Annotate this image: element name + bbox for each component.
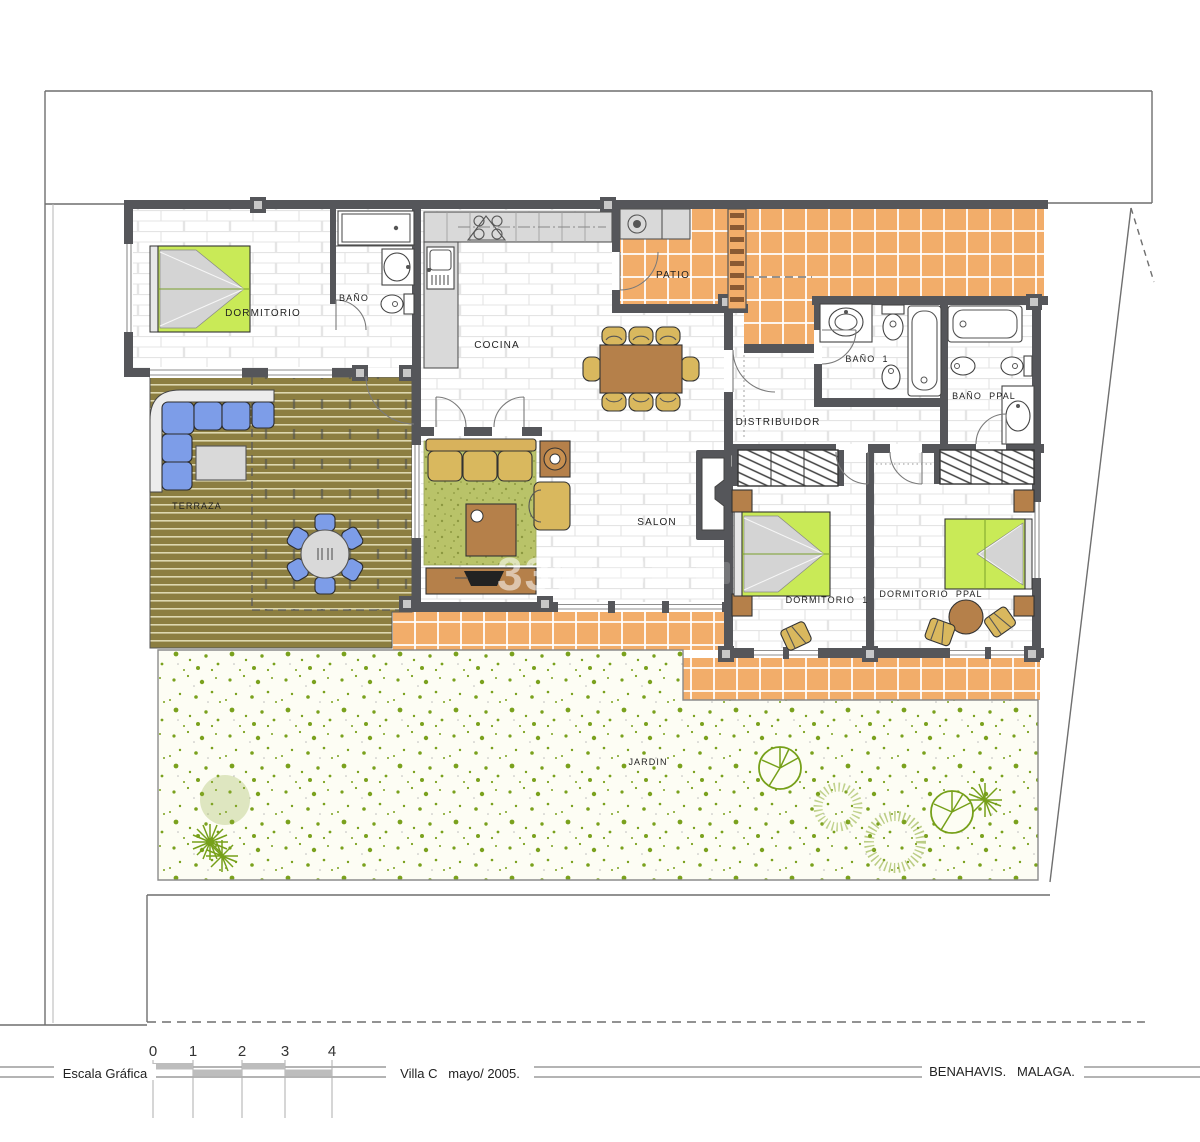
- nightstand: [732, 594, 752, 616]
- dining-chair: [656, 327, 680, 345]
- dining-chair: [629, 393, 653, 411]
- wardrobe: [934, 450, 1040, 484]
- bed-double: [150, 246, 250, 332]
- dining-chair: [656, 393, 680, 411]
- dining-chair: [602, 327, 626, 345]
- pillar: [1024, 646, 1040, 662]
- dining-chair: [629, 327, 653, 345]
- bathtub-icon: [908, 306, 941, 396]
- room-label-cocina: COCINA: [474, 340, 520, 351]
- outdoor-chair: [315, 514, 335, 531]
- dining-chair: [681, 357, 699, 381]
- outdoor-round-table: [301, 530, 349, 578]
- toilet-icon: [882, 305, 904, 340]
- armchair: [529, 482, 570, 530]
- scale-tick-4: 4: [328, 1043, 336, 1060]
- room-label-dormitorio1: DORMITORIO 1: [786, 595, 869, 605]
- side-table-lamp: [540, 441, 570, 477]
- toilet-icon: [1001, 356, 1032, 376]
- nightstand: [1014, 596, 1034, 616]
- scale-tick-3: 3: [281, 1043, 289, 1060]
- washbasin-icon: [382, 249, 414, 285]
- terrace-band-south-bedrooms: [683, 658, 1040, 700]
- pillar: [399, 365, 415, 381]
- room-label-terraza: TERRAZA: [172, 501, 222, 511]
- nightstand: [732, 490, 752, 512]
- dining-chair: [602, 393, 626, 411]
- scale-tick-1: 1: [189, 1043, 197, 1060]
- kitchen-sink-icon: [427, 247, 454, 289]
- bed-double: [734, 512, 830, 596]
- room-label-salon: SALON: [637, 517, 676, 528]
- shower-tray-icon: [338, 211, 414, 245]
- wardrobe: [732, 450, 844, 486]
- scale-label: Escala Gráfica: [63, 1066, 148, 1081]
- sofa: [426, 439, 536, 481]
- project-title: Villa C mayo/ 2005.: [400, 1066, 520, 1081]
- pillar: [600, 197, 616, 213]
- toilet-icon: [381, 294, 414, 314]
- location-label: BENAHAVIS. MALAGA.: [929, 1064, 1075, 1079]
- outdoor-table: [196, 446, 246, 480]
- dining-chair: [583, 357, 601, 381]
- bed-double: [945, 519, 1032, 589]
- room-label-bano: BAÑO: [339, 293, 369, 303]
- title-block: 0 1 2 3 4 Escala Gráfica Villa C mayo/ 2…: [0, 1043, 1200, 1118]
- bidet-icon: [951, 357, 975, 375]
- floor-plan-canvas: 336 DORMITORIO BAÑO COCINA PATIO BAÑO 1 …: [0, 0, 1200, 1142]
- pillar: [250, 197, 266, 213]
- terrace-band-south-salon: [392, 610, 726, 650]
- nightstand: [1014, 490, 1034, 512]
- room-label-dormitorio: DORMITORIO: [225, 308, 301, 319]
- bedroom-nw-furniture: [150, 246, 250, 332]
- scale-tick-2: 2: [238, 1043, 246, 1060]
- dining-table: [600, 345, 682, 393]
- pillar: [862, 646, 878, 662]
- bathtub-icon: [948, 306, 1022, 342]
- floor-plan-drawing: 336 DORMITORIO BAÑO COCINA PATIO BAÑO 1 …: [0, 0, 1200, 1142]
- patio-stair: [728, 209, 746, 309]
- bidet-icon: [882, 365, 900, 389]
- pillar: [718, 646, 734, 662]
- room-label-bano-ppal: BAÑO PPAL: [952, 391, 1016, 401]
- room-label-bano1: BAÑO 1: [845, 354, 888, 364]
- room-label-patio: PATIO: [656, 270, 690, 281]
- patio-counter: [620, 209, 690, 239]
- pillar: [399, 596, 415, 612]
- room-label-distribuidor: DISTRIBUIDOR: [736, 417, 821, 428]
- pillar: [1026, 294, 1042, 310]
- room-label-dormitorio-ppal: DORMITORIO PPAL: [879, 589, 982, 599]
- scale-tick-0: 0: [149, 1043, 157, 1060]
- room-label-jardin: JARDIN: [628, 757, 667, 767]
- washbasin-icon: [820, 304, 872, 342]
